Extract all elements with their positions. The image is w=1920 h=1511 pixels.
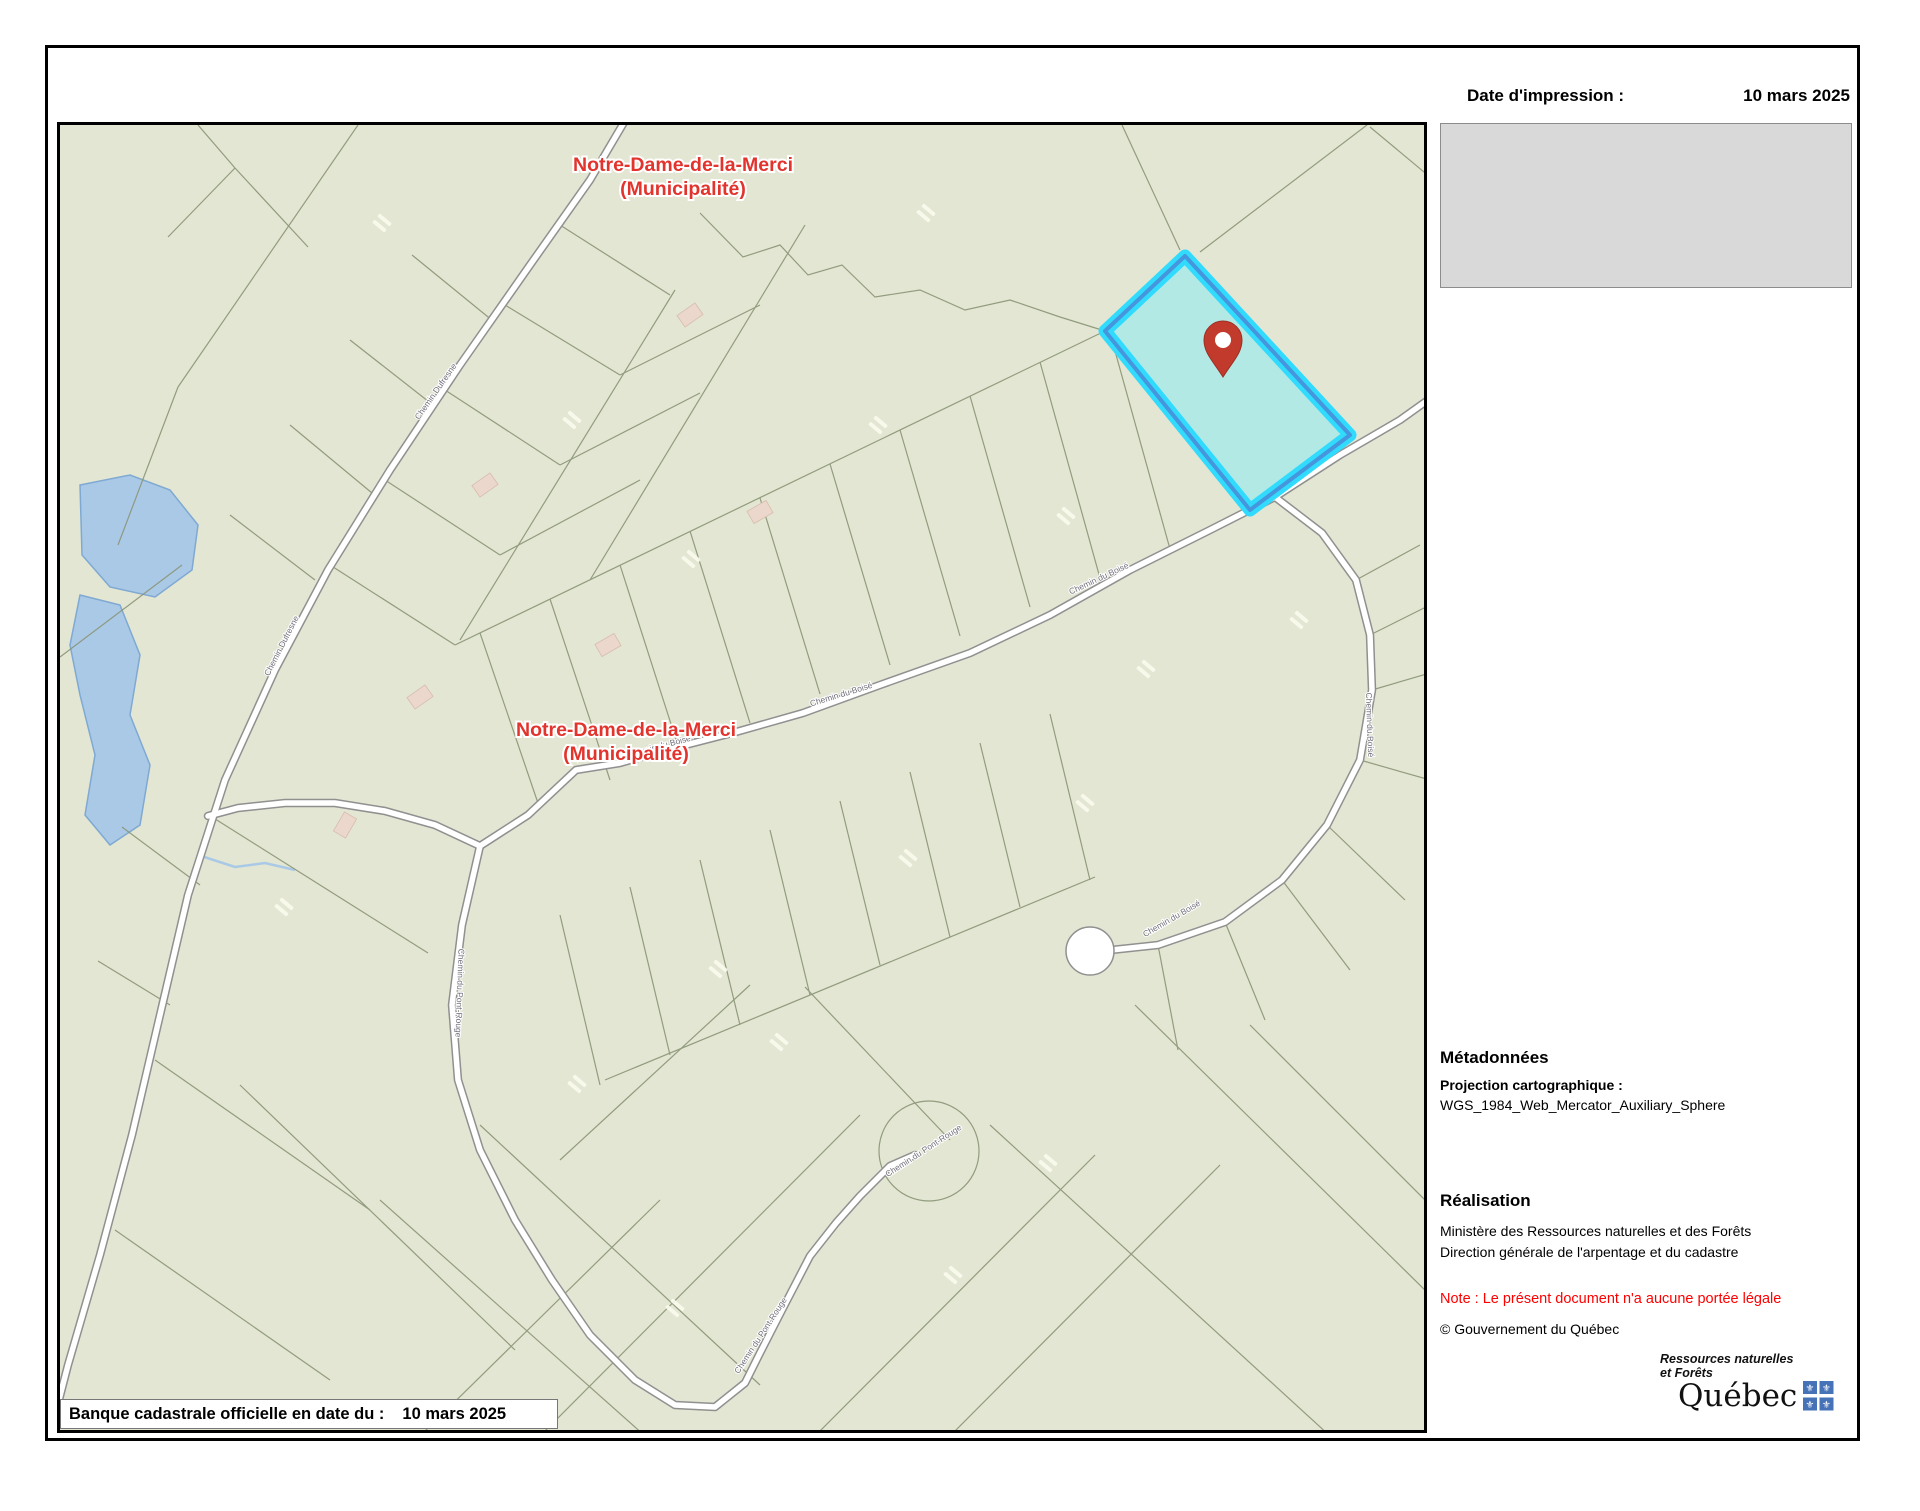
structure-mark <box>681 549 701 568</box>
structure-mark <box>1289 610 1309 629</box>
cadastre-date-strip: Banque cadastrale officielle en date du … <box>60 1399 558 1429</box>
municipality-label: (Municipalité) <box>620 178 746 200</box>
cadastral-map[interactable]: Chemin DufresneChemin DufresneChemin du … <box>60 125 1424 1430</box>
realisation-line1: Ministère des Ressources naturelles et d… <box>1440 1223 1855 1239</box>
structure-mark <box>868 415 888 434</box>
structure-mark <box>1075 793 1095 812</box>
print-date-label: Date d'impression : <box>1467 86 1624 106</box>
building-footprint <box>677 303 703 327</box>
road-label: Chemin du Pont-Rouge <box>732 1295 789 1375</box>
structure-mark <box>943 1265 963 1284</box>
svg-text:⚜: ⚜ <box>1806 1384 1815 1395</box>
road-label: Chemin Dufresne <box>262 614 301 678</box>
culdesac-circle <box>1066 927 1114 975</box>
cadastral-map-page: { "header": { "print_date_label": "Date … <box>0 0 1920 1511</box>
building-footprint <box>472 473 498 497</box>
metadata-heading: Métadonnées <box>1440 1048 1855 1068</box>
map-canvas[interactable]: Chemin DufresneChemin DufresneChemin du … <box>57 122 1427 1433</box>
structure-mark <box>274 897 294 916</box>
structure-mark <box>567 1074 587 1093</box>
structure-mark <box>372 213 392 232</box>
road-label: Chemin Dufresne <box>412 361 458 421</box>
building-footprint <box>333 812 356 838</box>
municipality-label: Notre-Dame-de-la-Merci <box>573 154 793 176</box>
structure-mark <box>1136 659 1156 678</box>
quebec-flag-icon: ⚜⚜⚜⚜ <box>1803 1381 1849 1411</box>
projection-label: Projection cartographique : <box>1440 1077 1855 1093</box>
structure-mark <box>769 1032 789 1051</box>
building-footprint <box>407 685 433 709</box>
structure-mark <box>1038 1153 1058 1172</box>
svg-text:⚜: ⚜ <box>1822 1400 1831 1411</box>
stream <box>198 855 295 870</box>
water-body <box>80 475 198 597</box>
logo-line1: Ressources naturelles <box>1660 1352 1855 1366</box>
cadastre-strip-value: 10 mars 2025 <box>402 1405 506 1424</box>
quebec-logo: Ressources naturelles et Forêts Québec ⚜… <box>1660 1352 1855 1411</box>
water-body <box>70 595 150 845</box>
svg-text:⚜: ⚜ <box>1822 1384 1831 1395</box>
municipality-label: Notre-Dame-de-la-Merci <box>516 719 736 741</box>
svg-text:⚜: ⚜ <box>1806 1400 1815 1411</box>
realisation-heading: Réalisation <box>1440 1191 1855 1211</box>
projection-value: WGS_1984_Web_Mercator_Auxiliary_Sphere <box>1440 1097 1855 1113</box>
print-date-value: 10 mars 2025 <box>1743 86 1850 106</box>
copyright: © Gouvernement du Québec <box>1440 1321 1855 1337</box>
structure-mark <box>916 203 936 222</box>
municipality-label: (Municipalité) <box>563 743 689 765</box>
logo-wordmark: Québec <box>1678 1381 1797 1411</box>
road-label: Chemin du Pont-Rouge <box>883 1122 963 1179</box>
structure-mark <box>898 848 918 867</box>
realisation-line2: Direction générale de l'arpentage et du … <box>1440 1244 1855 1260</box>
structure-mark <box>562 410 582 429</box>
structure-mark <box>1056 506 1076 525</box>
print-date-row: Date d'impression : 10 mars 2025 <box>1467 86 1850 106</box>
cadastre-strip-label: Banque cadastrale officielle en date du … <box>69 1405 384 1424</box>
building-footprint <box>747 500 773 523</box>
building-footprint <box>595 633 621 656</box>
legal-note: Note : Le présent document n'a aucune po… <box>1440 1291 1855 1307</box>
legend-box <box>1440 123 1852 288</box>
structure-mark <box>665 1298 685 1317</box>
